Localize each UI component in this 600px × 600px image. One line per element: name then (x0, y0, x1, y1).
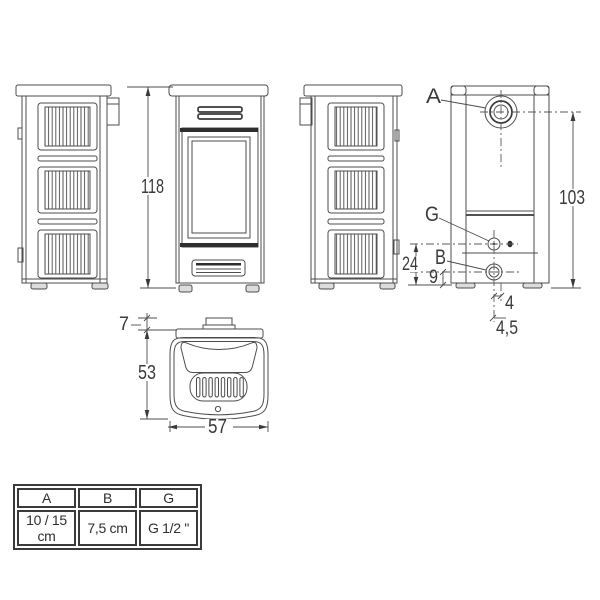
spec-table: A B G 10 / 15 cm 7,5 cm G 1/2 " (13, 484, 202, 550)
spec-value-a: 10 / 15 cm (17, 510, 76, 546)
dim-front-height-label: 118 (141, 176, 164, 198)
side-view-right (300, 85, 402, 289)
door-top-outline (181, 342, 257, 372)
dim-collar-label: 7 (119, 314, 129, 335)
foot (380, 283, 395, 289)
flue-collar-side (300, 98, 312, 125)
front-view (169, 85, 268, 292)
spec-value-b: 7,5 cm (78, 510, 137, 546)
dim-g-height-label: 24 (402, 254, 418, 275)
label-fitting-g: G (425, 203, 439, 226)
spec-header-a: A (17, 488, 76, 508)
spec-header-g: G (139, 488, 198, 508)
dim-offset-label: 4 (505, 293, 514, 314)
page: { "drawing": { "dims": { "front_height":… (0, 0, 600, 600)
dim-depth-label: 53 (138, 362, 156, 384)
door-glass (192, 141, 246, 233)
dim-front-height: 118 (127, 87, 176, 288)
top-vent-slot (198, 107, 242, 112)
foot (246, 285, 259, 292)
spec-value-g: G 1/2 " (139, 510, 198, 546)
ceramic-panel (45, 234, 90, 274)
flue-collar-top (206, 318, 232, 325)
dim-offset-alt-label: 4,5 (496, 318, 518, 339)
side-view-left (16, 85, 119, 289)
top-plate (176, 329, 263, 338)
rear-annotations: A G B 103 24 9 4 4,5 (400, 85, 590, 339)
foot (319, 283, 334, 289)
flue-collar-side (107, 98, 119, 125)
knob (215, 406, 220, 411)
ceramic-panel (335, 234, 377, 274)
spec-header-b: B (78, 488, 137, 508)
label-flue-a: A (426, 85, 441, 108)
foot (92, 283, 108, 289)
top-view-dims: 7 53 57 (119, 313, 268, 438)
door-frame (182, 128, 258, 247)
foot (179, 285, 192, 292)
label-fitting-b: B (435, 246, 446, 269)
ceramic-panel (335, 107, 377, 146)
foot (523, 283, 542, 288)
ceramic-panel (45, 171, 90, 209)
spec-header-row: A B G (17, 488, 198, 508)
dim-width-label: 57 (208, 416, 227, 438)
bottom-vent (192, 260, 245, 276)
foot (31, 283, 47, 289)
dim-rear-height-label: 103 (559, 187, 585, 209)
dim-b-height-label: 9 (429, 267, 438, 288)
top-vent-slot (198, 114, 242, 119)
ceramic-panel (335, 171, 377, 209)
foot (456, 283, 475, 288)
spec-value-row: 10 / 15 cm 7,5 cm G 1/2 " (17, 510, 198, 546)
ceramic-panel (45, 107, 90, 146)
hinge (18, 128, 22, 139)
top-view (170, 318, 268, 419)
